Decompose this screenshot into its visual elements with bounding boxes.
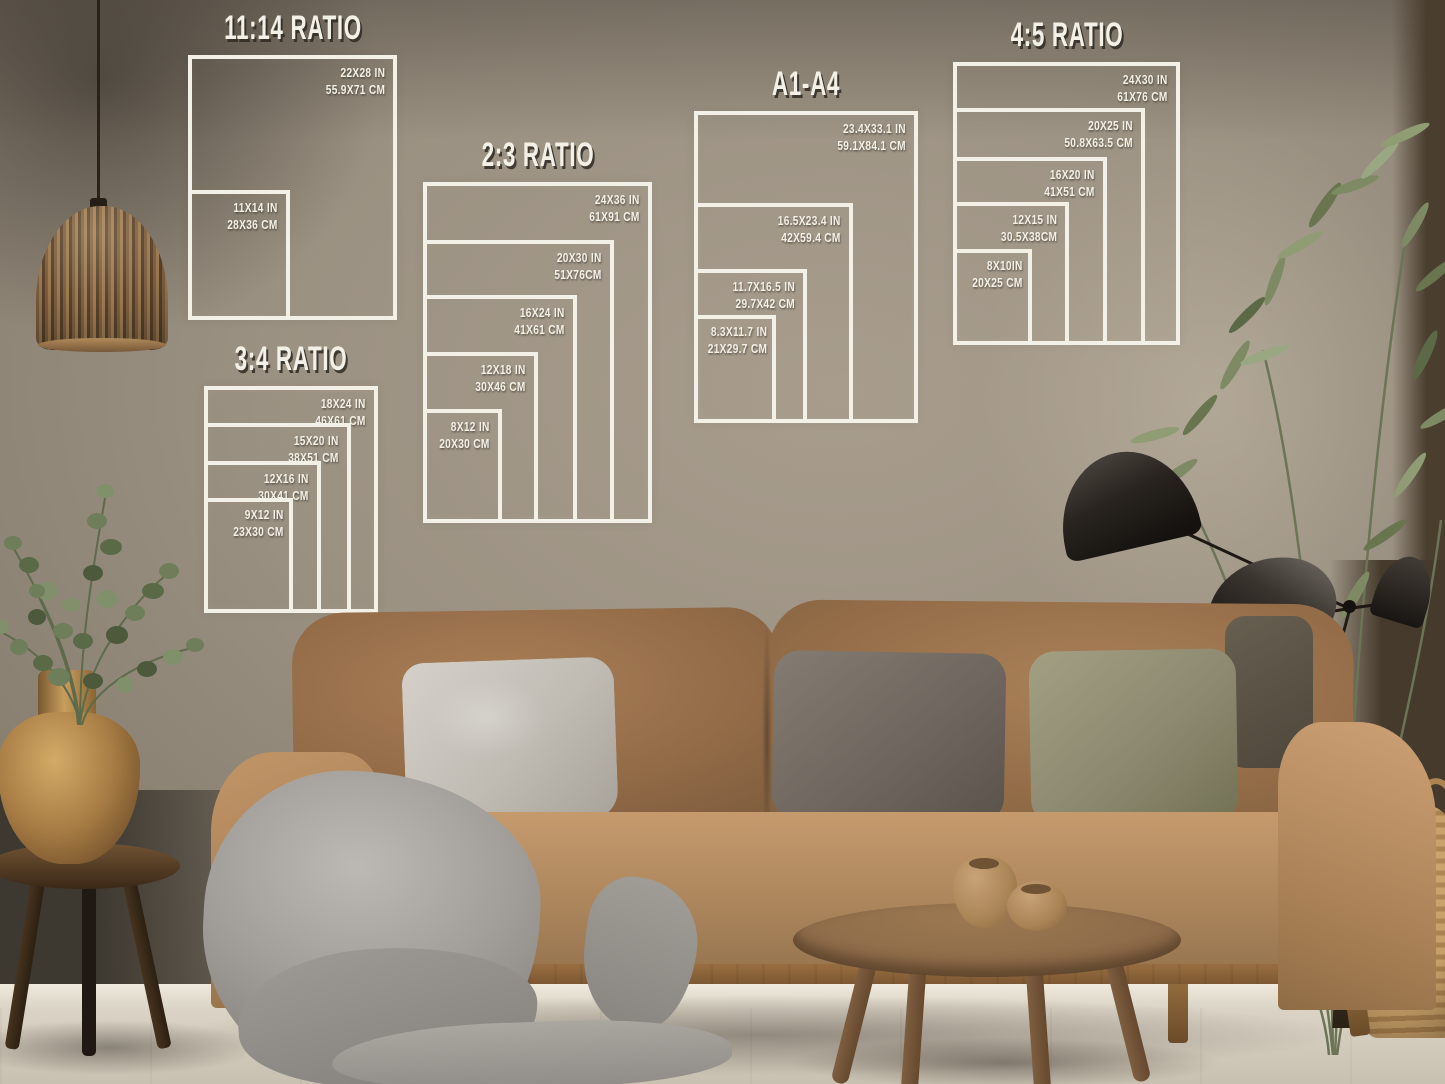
size-label: 16.5X23.4 IN 42X59.4 CM (778, 213, 841, 247)
size-inches: 16.5X23.4 IN (778, 213, 841, 230)
size-chart-2-3: 2:3 RATIO 24X36 IN 61X91 CM 20X30 IN 51X… (423, 182, 652, 523)
size-label: 24X36 IN 61X91 CM (590, 192, 640, 226)
size-cm: 29.7X42 CM (733, 296, 795, 313)
size-rect: 8X12 IN 20X30 CM (423, 409, 502, 523)
living-room-mockup: 11:14 RATIO 22X28 IN 55.9X71 CM 11X14 IN… (0, 0, 1445, 1084)
size-label: 22X28 IN 55.9X71 CM (326, 65, 385, 99)
size-inches: 8X12 IN (440, 419, 490, 436)
size-label: 8X12 IN 20X30 CM (440, 419, 490, 453)
size-cm: 30X46 CM (476, 379, 526, 396)
size-cm: 41X61 CM (515, 322, 565, 339)
size-label: 11X14 IN 28X36 CM (228, 200, 278, 234)
chart-title: 11:14 RATIO (224, 9, 362, 48)
size-label: 23.4X33.1 IN 59.1X84.1 CM (837, 121, 906, 155)
pillow-olive (1028, 648, 1238, 826)
size-chart-a1-a4: A1-A4 23.4X33.1 IN 59.1X84.1 CM 16.5X23.… (694, 111, 918, 423)
size-inches: 8X10IN (973, 258, 1023, 275)
sofa-arm-right (1278, 722, 1436, 1010)
size-rect: 8X10IN 20X25 CM (953, 249, 1032, 345)
size-inches: 24X36 IN (590, 192, 640, 209)
size-inches: 16X20 IN (1045, 167, 1095, 184)
floor-lamp-hub (1343, 600, 1356, 613)
vase-opening (969, 858, 999, 869)
chart-title: A1-A4 (772, 65, 840, 104)
size-chart-11-14: 11:14 RATIO 22X28 IN 55.9X71 CM 11X14 IN… (188, 55, 397, 320)
size-cm: 42X59.4 CM (778, 230, 841, 247)
pillow-dark-gray (772, 650, 1007, 824)
size-cm: 30.5X38CM (1001, 229, 1057, 246)
size-inches: 11X14 IN (228, 200, 278, 217)
size-inches: 23.4X33.1 IN (837, 121, 906, 138)
size-inches: 11.7X16.5 IN (733, 279, 795, 296)
size-label: 8X10IN 20X25 CM (973, 258, 1023, 292)
size-rect: 8.3X11.7 IN 21X29.7 CM (694, 315, 776, 423)
size-label: 16X24 IN 41X61 CM (515, 305, 565, 339)
size-inches: 12X18 IN (476, 362, 526, 379)
size-cm: 51X76CM (555, 267, 602, 284)
chart-title: 4:5 RATIO (1010, 16, 1123, 55)
size-label: 20X30 IN 51X76CM (555, 250, 602, 284)
size-label: 11.7X16.5 IN 29.7X42 CM (733, 279, 795, 313)
size-cm: 61X91 CM (590, 209, 640, 226)
chart-title: 2:3 RATIO (481, 136, 594, 175)
size-inches: 12X15 IN (1001, 212, 1057, 229)
size-cm: 28X36 CM (228, 217, 278, 234)
chart-title: 3:4 RATIO (235, 340, 348, 379)
size-inches: 18X24 IN (316, 396, 366, 413)
pendant-lamp-rim (38, 338, 166, 352)
size-inches: 16X24 IN (515, 305, 565, 322)
size-label: 8.3X11.7 IN 21X29.7 CM (708, 324, 767, 358)
size-cm: 20X25 CM (973, 275, 1023, 292)
size-cm: 21X29.7 CM (708, 341, 767, 358)
size-label: 12X18 IN 30X46 CM (476, 362, 526, 396)
size-cm: 59.1X84.1 CM (837, 138, 906, 155)
size-inches: 22X28 IN (326, 65, 385, 82)
size-inches: 20X30 IN (555, 250, 602, 267)
size-cm: 20X30 CM (440, 436, 490, 453)
stool-leg (82, 884, 96, 1056)
size-label: 12X15 IN 30.5X38CM (1001, 212, 1057, 246)
size-inches: 8.3X11.7 IN (708, 324, 767, 341)
vase-opening (1021, 884, 1051, 894)
size-label: 16X20 IN 41X51 CM (1045, 167, 1095, 201)
eucalyptus-branches (0, 395, 305, 725)
size-rect: 11X14 IN 28X36 CM (188, 190, 290, 320)
pendant-lamp-cord (97, 0, 100, 210)
size-cm: 41X51 CM (1045, 184, 1095, 201)
size-cm: 55.9X71 CM (326, 82, 385, 99)
sofa-leg (1168, 975, 1188, 1043)
